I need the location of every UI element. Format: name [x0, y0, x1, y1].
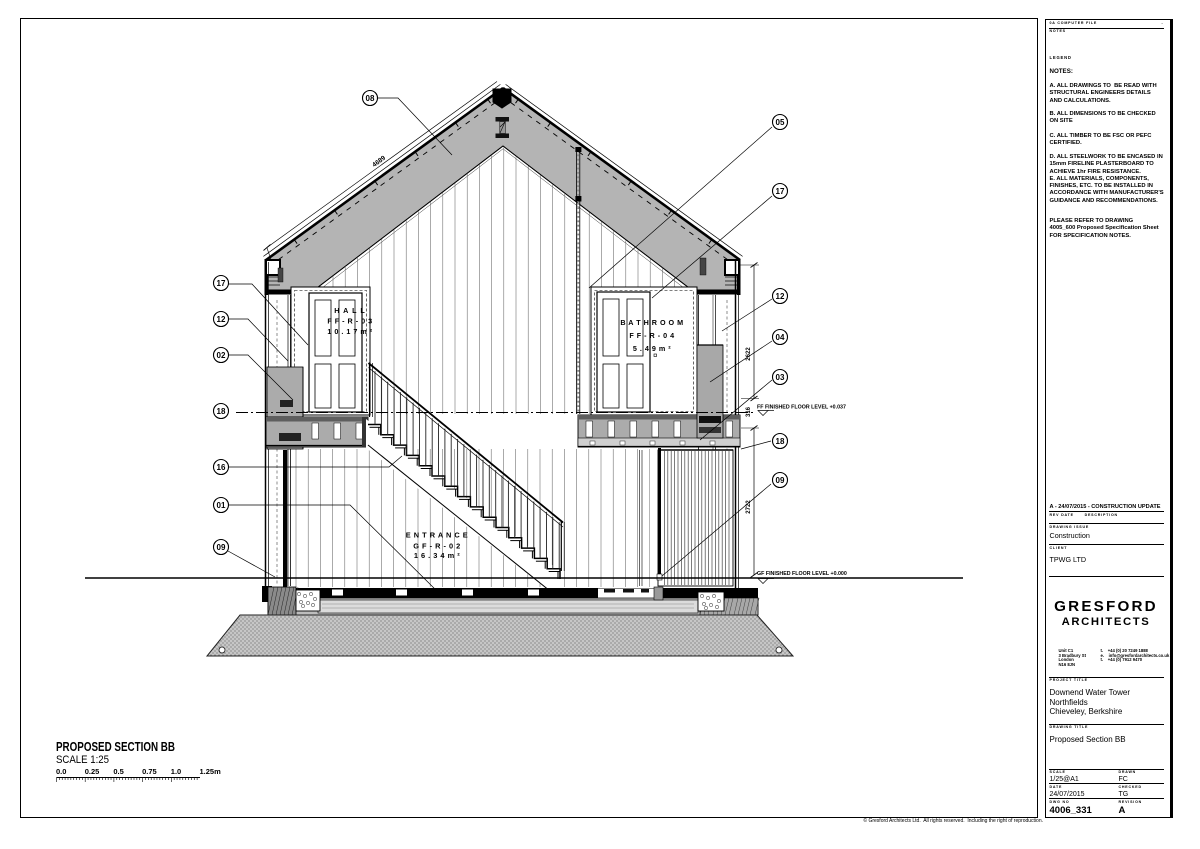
svg-text:FF FINISHED FLOOR LEVEL +0.037: FF FINISHED FLOOR LEVEL +0.037	[757, 405, 846, 411]
svg-text:1 0 . 1 7 m ²: 1 0 . 1 7 m ²	[327, 327, 372, 336]
svg-text:16: 16	[217, 463, 226, 472]
svg-text:12: 12	[776, 292, 785, 301]
svg-text:GF FINISHED FLOOR LEVEL +0.000: GF FINISHED FLOOR LEVEL +0.000	[757, 571, 847, 577]
svg-text:0.5: 0.5	[113, 767, 123, 776]
svg-text:0.75: 0.75	[142, 767, 157, 776]
svg-text:F F - R - 0 4: F F - R - 0 4	[629, 331, 674, 340]
svg-text:18: 18	[776, 437, 785, 446]
svg-text:12: 12	[217, 315, 226, 324]
svg-text:PROPOSED SECTION BB: PROPOSED SECTION BB	[56, 739, 175, 754]
svg-text:1.25m: 1.25m	[200, 767, 222, 776]
svg-text:E N T R A N C E: E N T R A N C E	[406, 531, 468, 540]
svg-text:1.0: 1.0	[171, 767, 181, 776]
svg-text:2722: 2722	[746, 500, 752, 514]
svg-text:01: 01	[217, 501, 226, 510]
svg-text:02: 02	[217, 351, 226, 360]
svg-text:0.0: 0.0	[56, 767, 66, 776]
svg-text:03: 03	[776, 373, 785, 382]
svg-text:0.25: 0.25	[85, 767, 100, 776]
svg-text:08: 08	[366, 94, 375, 103]
svg-text:1 6 . 3 4 m ²: 1 6 . 3 4 m ²	[414, 551, 460, 560]
svg-text:SCALE 1:25: SCALE 1:25	[56, 754, 109, 766]
svg-text:2622: 2622	[746, 347, 752, 361]
svg-text:G F - R - 0 2: G F - R - 0 2	[413, 542, 461, 551]
svg-text:09: 09	[217, 543, 226, 552]
svg-text:F F - R - 0 3: F F - R - 0 3	[327, 317, 372, 326]
svg-text:316: 316	[746, 406, 752, 417]
svg-text:17: 17	[217, 279, 226, 288]
svg-text:5 . 4 9 m ²: 5 . 4 9 m ²	[633, 344, 671, 353]
svg-text:09: 09	[776, 476, 785, 485]
svg-text:18: 18	[217, 407, 226, 416]
svg-text:04: 04	[776, 333, 785, 342]
svg-text:05: 05	[776, 118, 785, 127]
svg-text:B A T H R O O M: B A T H R O O M	[620, 318, 683, 327]
svg-text:17: 17	[776, 187, 785, 196]
svg-text:H A L L: H A L L	[334, 306, 366, 315]
